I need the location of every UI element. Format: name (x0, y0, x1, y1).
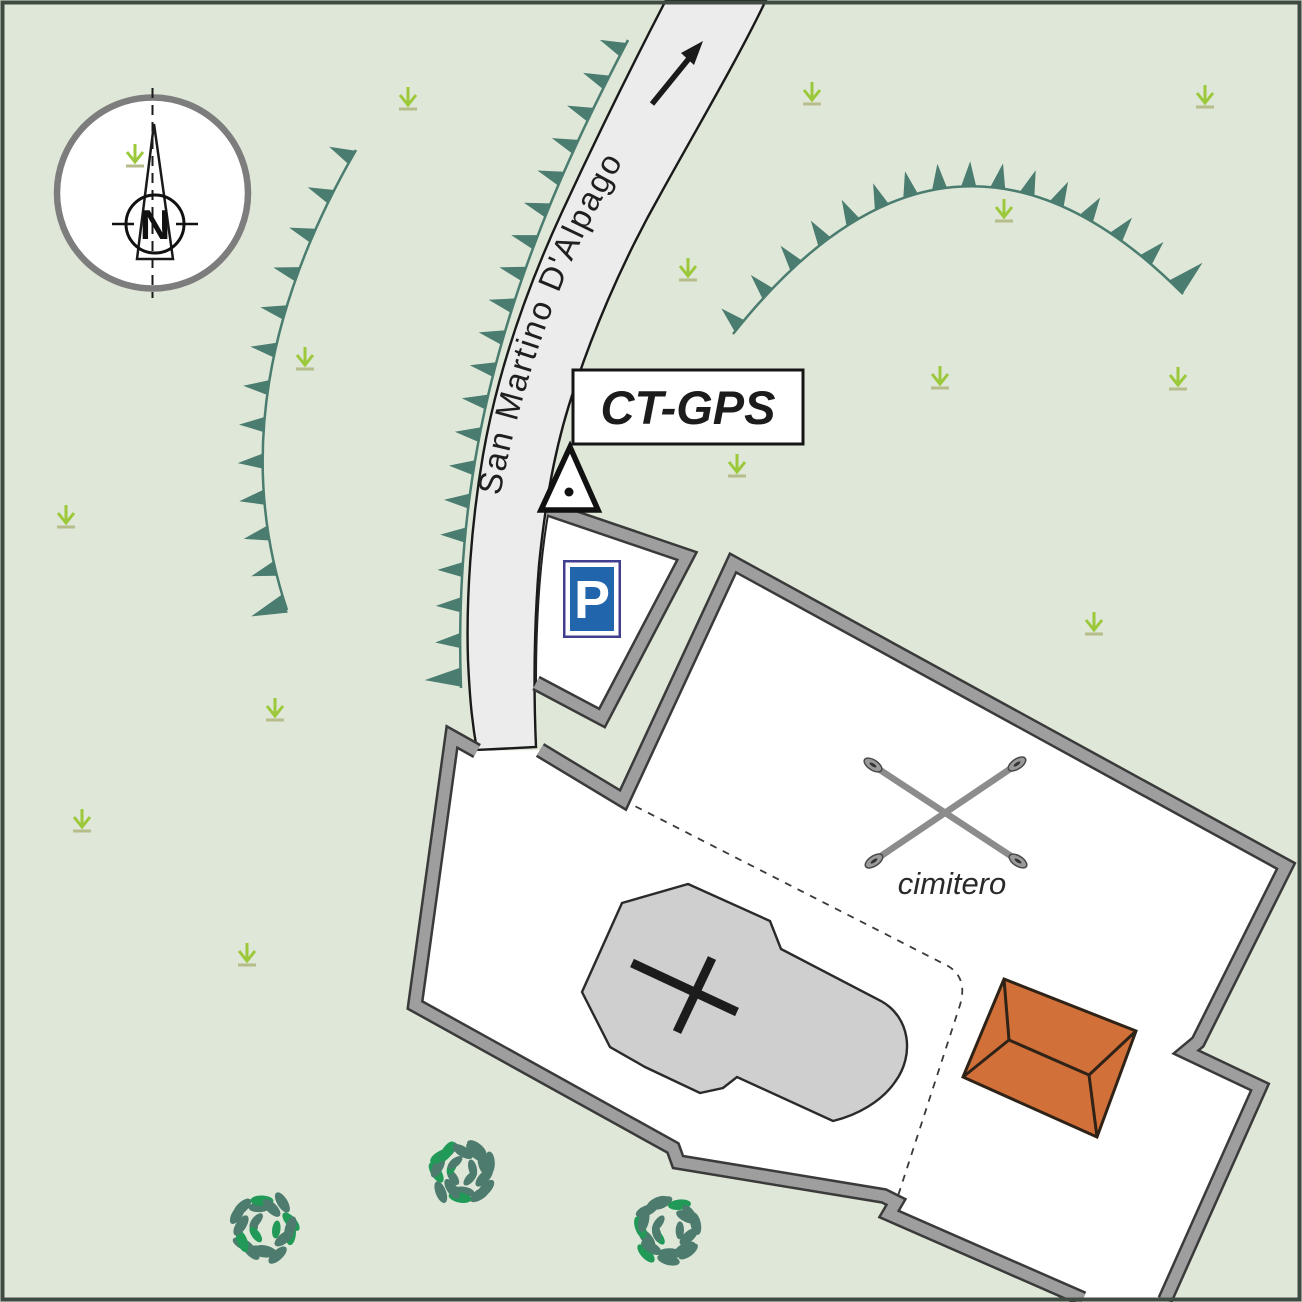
compass-north-label: N (140, 201, 170, 248)
site-map: San Martino D'Alpago N (0, 0, 1302, 1302)
parking-sign-label: P (574, 570, 610, 630)
station-label: CT-GPS (601, 381, 776, 434)
parking-sign: P (563, 560, 621, 638)
station-label-box: CT-GPS (573, 370, 803, 444)
map-canvas: San Martino D'Alpago N (0, 0, 1302, 1302)
cemetery-label: cimitero (898, 866, 1007, 901)
